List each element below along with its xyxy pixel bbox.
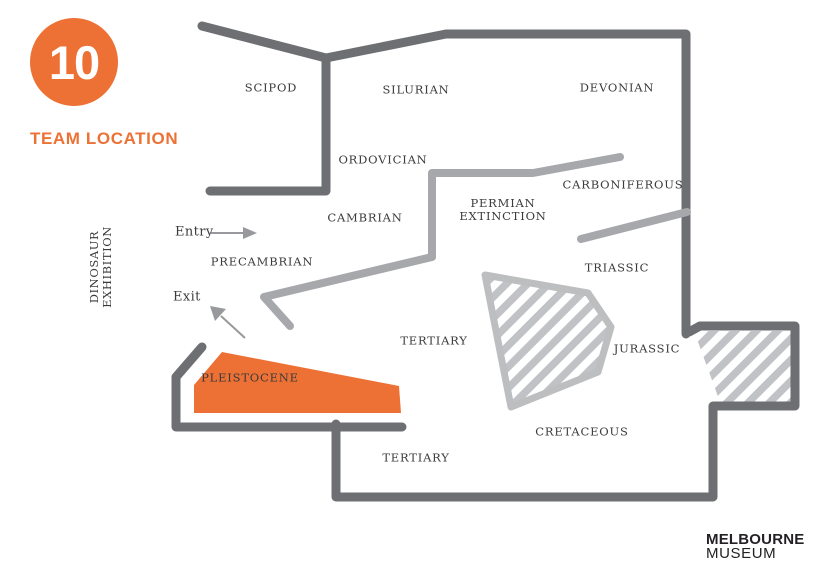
area-label-scipod: SCIPOD (245, 82, 297, 95)
area-label-tertiary-lower: TERTIARY (382, 452, 449, 465)
team-number-badge: 10 (30, 18, 118, 106)
area-label-devonian: DEVONIAN (580, 82, 655, 95)
side-room-hatched-shape (694, 331, 792, 402)
area-label-pleistocene: PLEISTOCENE (201, 372, 299, 385)
area-label-cambrian: CAMBRIAN (327, 212, 402, 225)
dinosaur-exhibition-line2: EXHIBITION (101, 226, 114, 308)
area-label-cretaceous: CRETACEOUS (535, 426, 628, 439)
wall-scipod-room (202, 26, 326, 191)
area-label-ordovician: ORDOVICIAN (338, 154, 427, 167)
team-number: 10 (49, 35, 99, 90)
area-label-precambrian: PRECAMBRIAN (211, 256, 314, 269)
area-label-jurassic: JURASSIC (614, 343, 681, 356)
area-label-tertiary-upper: TERTIARY (400, 335, 467, 348)
page-title: TEAM LOCATION (30, 129, 178, 149)
jurassic-hatched-shape (485, 275, 611, 407)
permian-line2: EXTINCTION (459, 210, 546, 223)
area-label-carboniferous: CARBONIFEROUS (563, 179, 684, 192)
area-label-triassic: TRIASSIC (585, 262, 649, 275)
entry-arrow-icon (211, 227, 257, 239)
area-label-silurian: SILURIAN (382, 84, 449, 97)
exit-label: Exit (173, 291, 201, 304)
museum-floor-map: 10 TEAM LOCATION DINOSAUR EXHIBITION SCI… (0, 0, 838, 576)
area-label-permian-extinction: PERMIAN EXTINCTION (459, 197, 546, 223)
dinosaur-exhibition-label: DINOSAUR EXHIBITION (88, 226, 114, 308)
wall-inner-triassic (581, 212, 687, 239)
logo-line2: MUSEUM (706, 547, 804, 561)
entry-label: Entry (175, 226, 214, 239)
melbourne-museum-logo: MELBOURNE MUSEUM (706, 533, 804, 561)
exit-arrow-icon (210, 306, 245, 338)
